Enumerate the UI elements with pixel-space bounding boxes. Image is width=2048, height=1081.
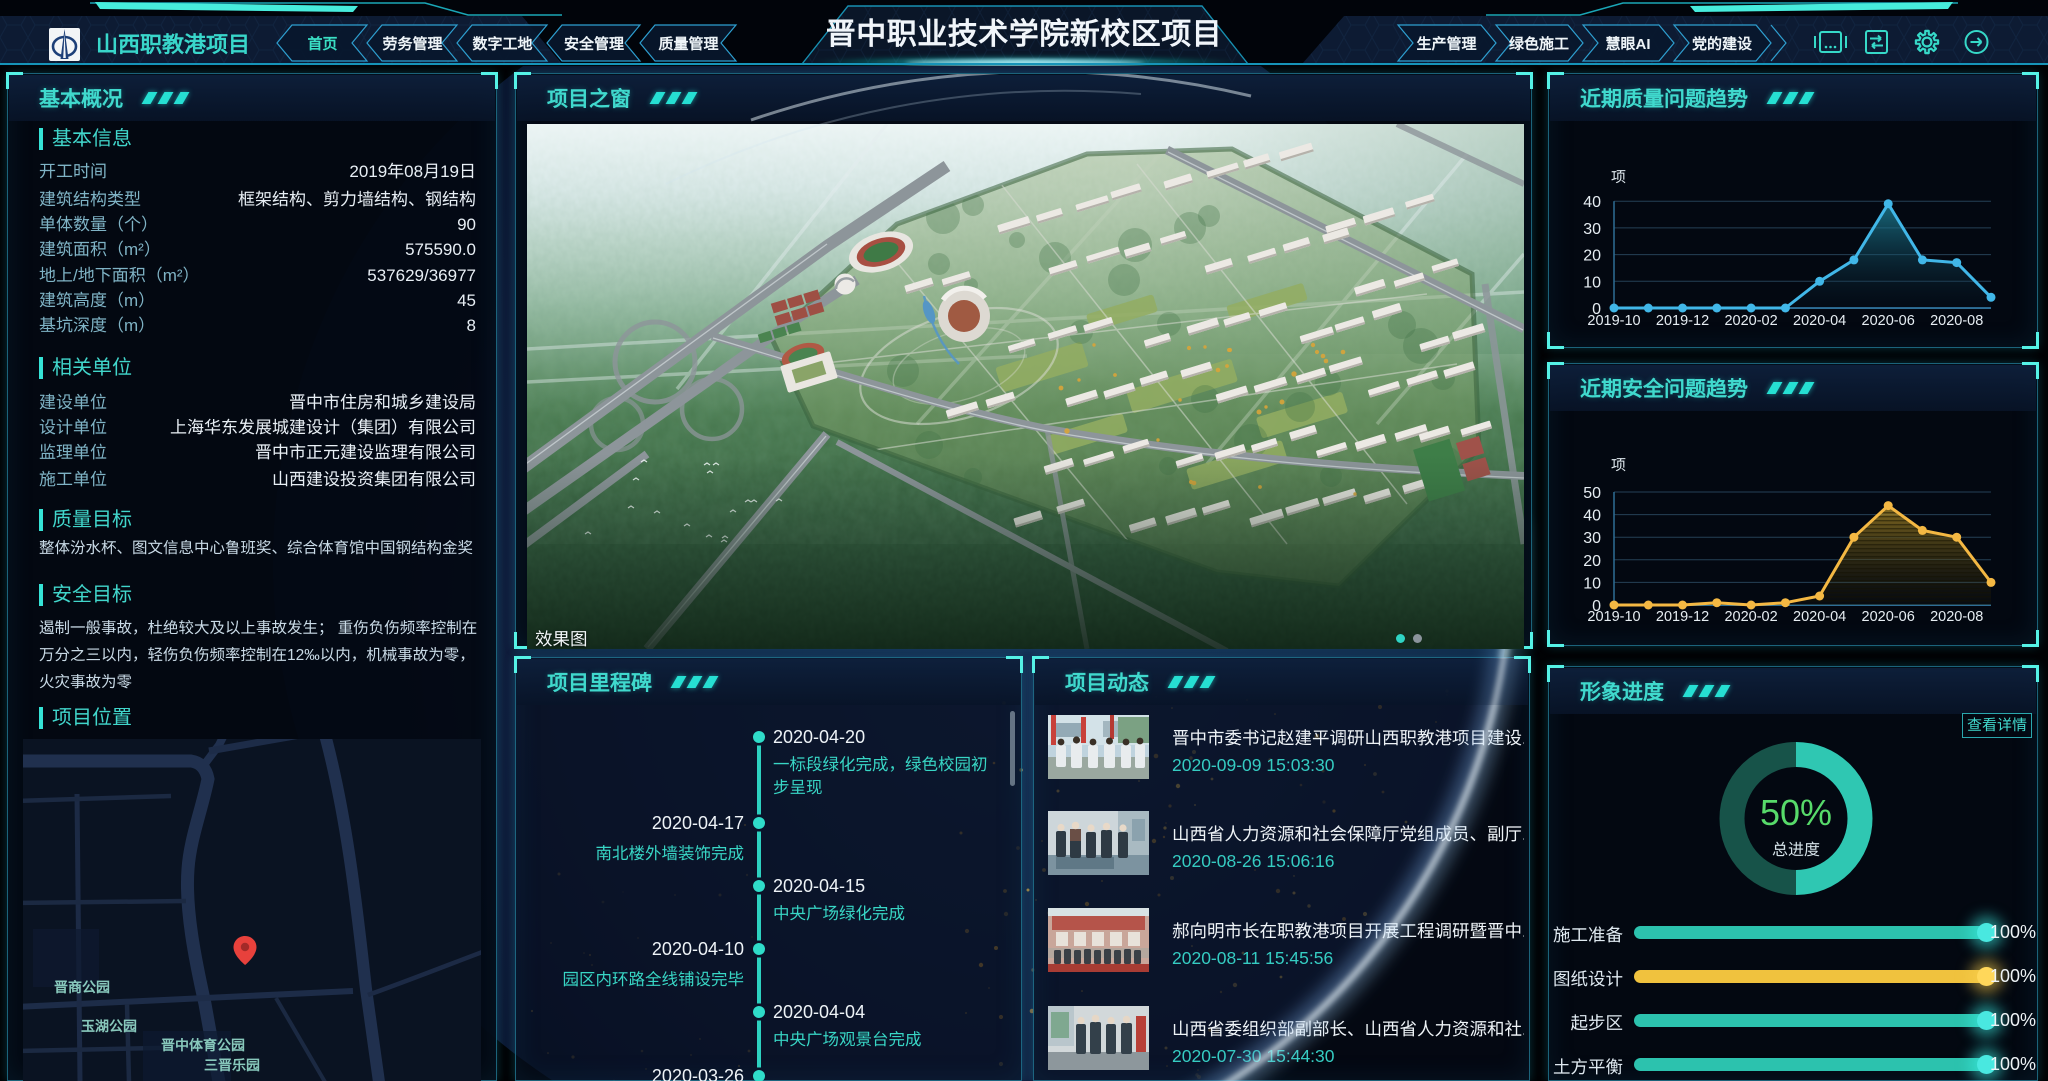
svg-text:生产管理: 生产管理: [1416, 36, 1476, 53]
svg-text:20: 20: [1583, 553, 1601, 570]
svg-text:山西职教港项目: 山西职教港项目: [96, 32, 250, 57]
svg-text:2020-06: 2020-06: [1862, 609, 1915, 625]
svg-text:质量管理: 质量管理: [658, 36, 718, 53]
svg-text:晋中体育公园: 晋中体育公园: [161, 1037, 245, 1053]
svg-text:30: 30: [1583, 221, 1601, 238]
svg-text:50: 50: [1583, 485, 1601, 502]
svg-text:10: 10: [1583, 274, 1601, 291]
svg-text:2020-04: 2020-04: [1793, 609, 1846, 625]
svg-text:2020-08: 2020-08: [1930, 609, 1983, 625]
svg-text:首页: 首页: [307, 35, 337, 53]
svg-text:2019-10: 2019-10: [1587, 609, 1640, 625]
svg-text:晋中职业技术学院新校区项目: 晋中职业技术学院新校区项目: [826, 17, 1223, 51]
svg-text:三晋乐园: 三晋乐园: [204, 1057, 260, 1073]
svg-text:2020-04: 2020-04: [1793, 313, 1846, 329]
svg-text:晋商公园: 晋商公园: [54, 979, 110, 995]
svg-text:玉湖公园: 玉湖公园: [81, 1018, 137, 1034]
svg-text:40: 40: [1583, 508, 1601, 525]
svg-text:2020-08: 2020-08: [1930, 313, 1983, 329]
svg-text:2020-02: 2020-02: [1724, 609, 1777, 625]
svg-text:2020-06: 2020-06: [1862, 313, 1915, 329]
svg-text:慧眼AI: 慧眼AI: [1605, 36, 1650, 53]
svg-text:2019-10: 2019-10: [1587, 313, 1640, 329]
svg-text:项: 项: [1611, 169, 1626, 186]
svg-text:数字工地: 数字工地: [472, 35, 532, 53]
svg-text:10: 10: [1583, 575, 1601, 592]
svg-text:2020-02: 2020-02: [1724, 313, 1777, 329]
svg-text:项: 项: [1611, 457, 1626, 474]
svg-text:50%: 50%: [1760, 792, 1832, 833]
svg-text:2019-12: 2019-12: [1656, 313, 1709, 329]
svg-text:绿色施工: 绿色施工: [1509, 35, 1569, 53]
svg-text:总进度: 总进度: [1772, 841, 1820, 859]
svg-text:20: 20: [1583, 248, 1601, 265]
svg-text:安全管理: 安全管理: [564, 35, 624, 53]
svg-text:30: 30: [1583, 530, 1601, 547]
svg-text:40: 40: [1583, 194, 1601, 211]
svg-text:劳务管理: 劳务管理: [382, 36, 442, 53]
svg-text:2019-12: 2019-12: [1656, 609, 1709, 625]
svg-text:党的建设: 党的建设: [1692, 35, 1753, 53]
